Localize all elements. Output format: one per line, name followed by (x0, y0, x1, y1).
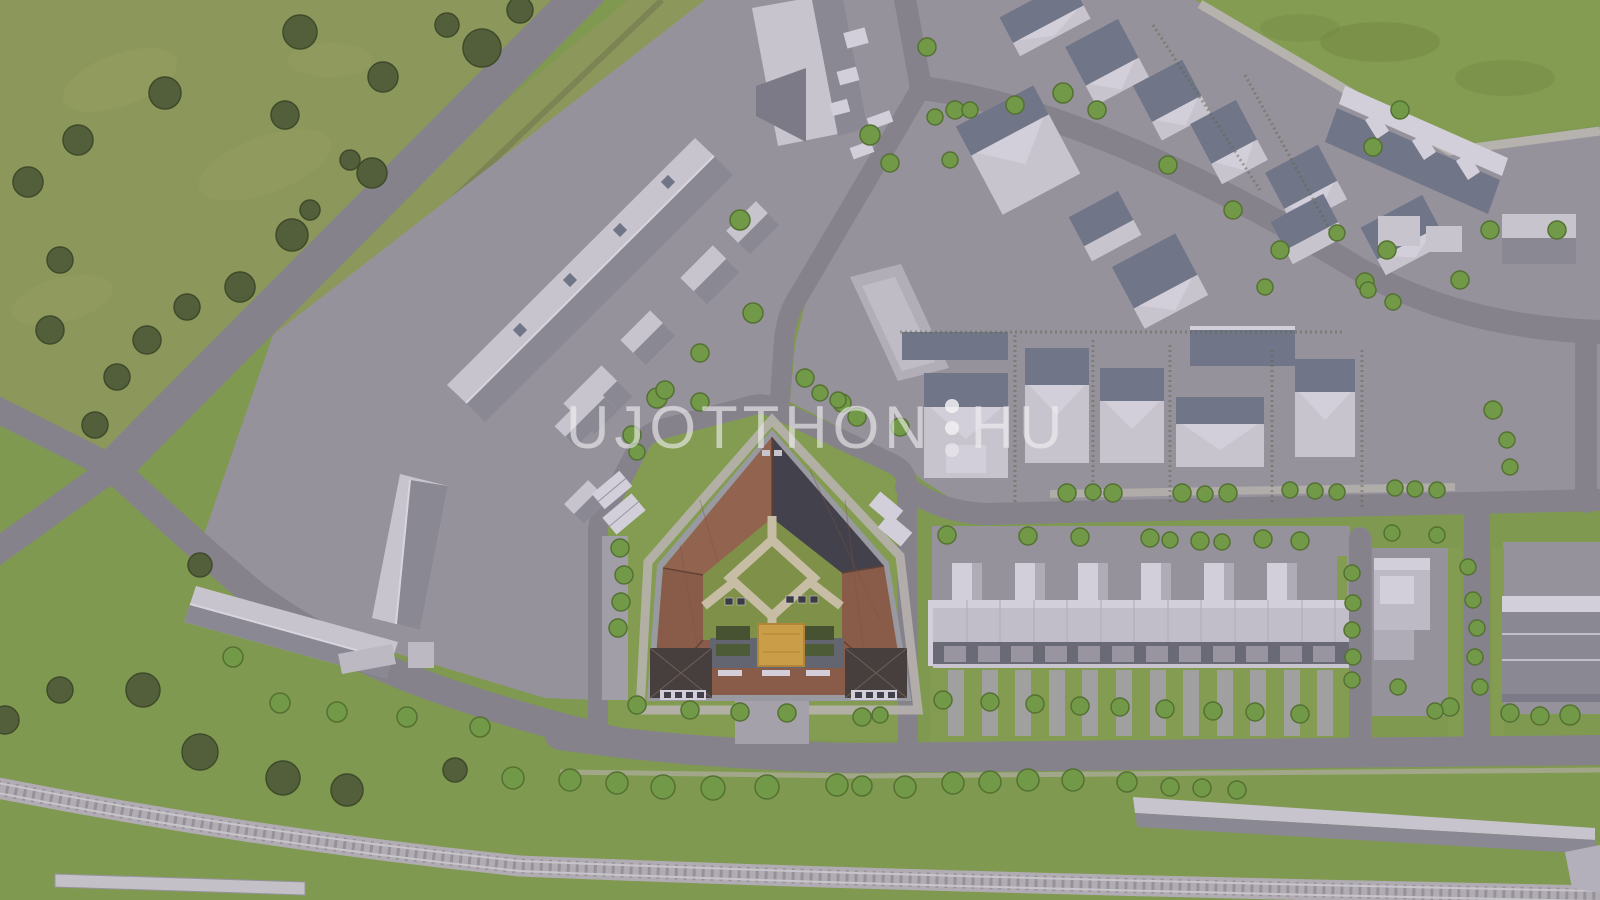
large-hall-building (1502, 596, 1600, 702)
hedge-left (716, 626, 750, 640)
corner-pavilion-left (650, 648, 712, 700)
corner-pavilion-right (845, 648, 907, 700)
playground-sandpit (758, 624, 804, 666)
aerial-site-rendering: UJOTTHON HU (0, 0, 1600, 900)
hedge-right (800, 626, 834, 640)
site-plan-scene (0, 0, 1600, 900)
